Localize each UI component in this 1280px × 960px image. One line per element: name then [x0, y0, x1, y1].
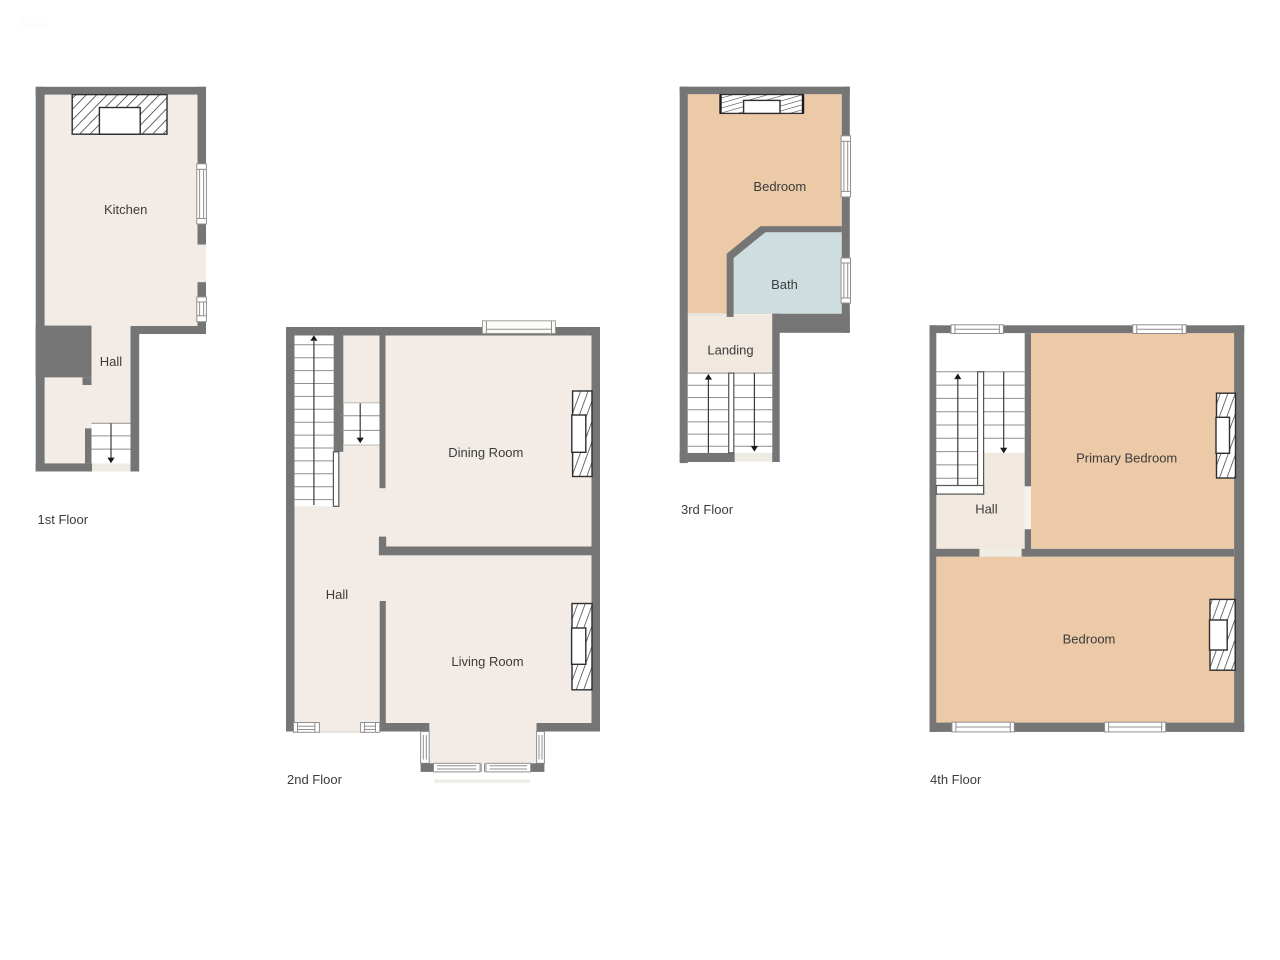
svg-text:2nd Floor: 2nd Floor: [287, 772, 343, 787]
svg-text:Hall: Hall: [975, 502, 998, 517]
svg-text:Landing: Landing: [707, 342, 753, 357]
svg-text:3rd Floor: 3rd Floor: [681, 502, 734, 517]
svg-text:Dining Room: Dining Room: [448, 445, 523, 460]
svg-text:Kitchen: Kitchen: [104, 202, 147, 217]
svg-text:Primary Bedroom: Primary Bedroom: [1076, 451, 1177, 466]
svg-text:1st Floor: 1st Floor: [38, 512, 89, 527]
svg-text:Bath: Bath: [771, 277, 798, 292]
svg-text:4th Floor: 4th Floor: [930, 772, 982, 787]
svg-text:Bedroom: Bedroom: [1063, 632, 1116, 647]
svg-text:Hall: Hall: [100, 354, 123, 369]
svg-text:Living Room: Living Room: [451, 654, 523, 669]
svg-text:Hall: Hall: [326, 587, 349, 602]
svg-text:Bedroom: Bedroom: [753, 179, 806, 194]
